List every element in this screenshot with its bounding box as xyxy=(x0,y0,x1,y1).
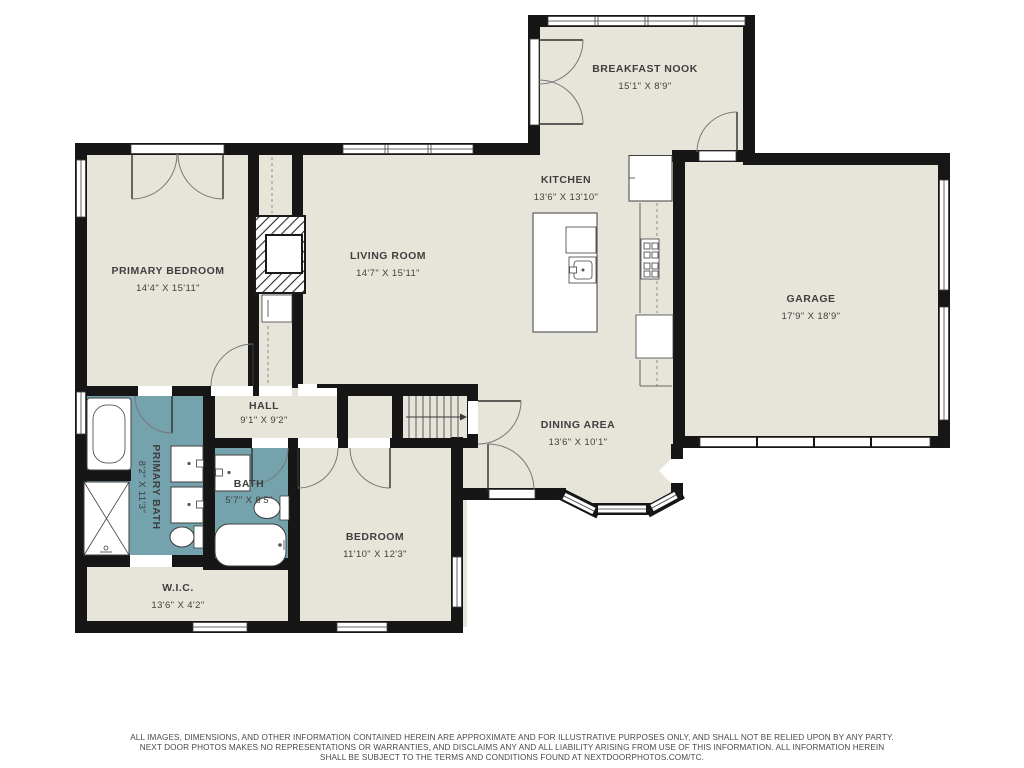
dims-hall: 9'1" X 9'2" xyxy=(240,415,288,426)
kitchen-island xyxy=(533,213,597,332)
island-cooktop xyxy=(566,227,596,253)
dims-garage: 17'9" X 18'9" xyxy=(782,311,841,322)
window-nook-top xyxy=(548,17,745,26)
stove-icon xyxy=(641,239,659,279)
dims-bath: 5'7" X 8'5" xyxy=(225,495,273,506)
island-sink-icon xyxy=(569,257,596,283)
toilet-icon xyxy=(170,526,203,548)
fireplace-cabinet xyxy=(262,295,292,322)
bathtub-icon xyxy=(87,398,131,470)
dims-bedroom: 11'10" X 12'3" xyxy=(343,549,407,560)
disclaimer-line-3: SHALL BE SUBJECT TO THE TERMS AND CONDIT… xyxy=(320,753,704,762)
window-garage-right-upper xyxy=(940,180,949,290)
floor-breakfast-nook xyxy=(534,21,749,163)
label-breakfast-nook: BREAKFAST NOOK xyxy=(592,63,698,75)
dims-dining-area: 13'6" X 10'1" xyxy=(549,437,608,448)
dims-kitchen: 13'6" X 13'10" xyxy=(534,192,599,203)
window-bedroom-bottom xyxy=(337,623,387,632)
window-bedroom-right xyxy=(453,557,462,607)
shower-icon xyxy=(84,482,129,555)
dishwasher-cabinet xyxy=(636,315,673,358)
fridge-icon xyxy=(629,156,672,202)
disclaimer-line-1: ALL IMAGES, DIMENSIONS, AND OTHER INFORM… xyxy=(130,733,894,742)
label-wic: W.I.C. xyxy=(162,582,194,594)
dims-primary-bedroom: 14'4" X 15'11" xyxy=(136,283,200,294)
window-primary-bedroom-left xyxy=(77,160,86,217)
label-hall: HALL xyxy=(249,400,279,412)
label-primary-bath: PRIMARY BATH xyxy=(150,444,162,529)
label-dining-area: DINING AREA xyxy=(541,419,616,431)
garage-door xyxy=(700,437,930,447)
window-garage-right-lower xyxy=(940,307,949,420)
disclaimer-line-2: NEXT DOOR PHOTOS MAKES NO REPRESENTATION… xyxy=(140,743,885,752)
vanity-sink-icon xyxy=(171,446,204,482)
label-bath: BATH xyxy=(234,478,264,490)
window-wic-bottom xyxy=(193,623,247,632)
dims-breakfast-nook: 15'1" X 8'9" xyxy=(618,81,671,92)
label-primary-bedroom: PRIMARY BEDROOM xyxy=(111,265,224,277)
dims-wic: 13'6" X 4'2" xyxy=(151,600,204,611)
label-garage: GARAGE xyxy=(786,293,835,305)
label-bedroom: BEDROOM xyxy=(346,531,404,543)
window-primary-bath-left xyxy=(77,392,86,434)
floor-plan: BREAKFAST NOOK 15'1" X 8'9" KITCHEN 13'6… xyxy=(0,0,1024,768)
dims-living-room: 14'7" X 15'11" xyxy=(356,268,420,279)
label-living-room: LIVING ROOM xyxy=(350,250,426,262)
vanity-sink-icon xyxy=(171,487,204,523)
bathtub-icon xyxy=(215,524,286,566)
window-living-top xyxy=(343,145,473,154)
fireplace-firebox xyxy=(266,235,302,273)
dims-primary-bath: 8'2" X 11'3" xyxy=(136,461,147,514)
label-kitchen: KITCHEN xyxy=(541,174,591,186)
